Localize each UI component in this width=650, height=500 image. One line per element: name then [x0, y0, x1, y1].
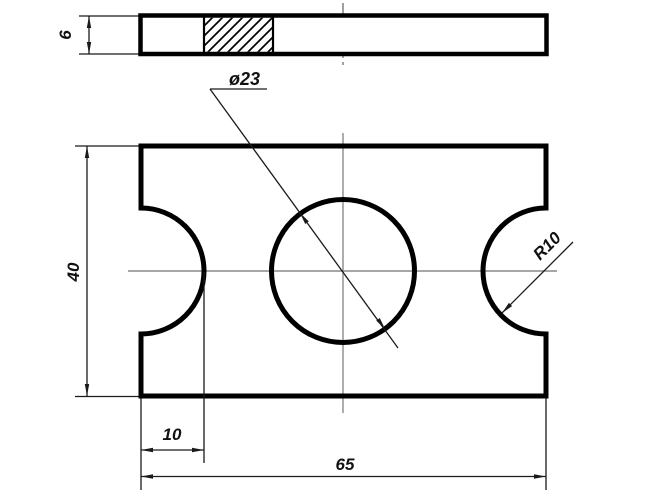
dimension-label-width: 65 [336, 455, 355, 474]
arrowhead [87, 16, 91, 28]
centerlines [128, 3, 557, 413]
dimension-label-height: 40 [64, 262, 83, 282]
arrowhead [85, 146, 89, 158]
dimension-thickness: 6 [56, 16, 140, 54]
dimension-label-notch-radius: R10 [529, 228, 565, 264]
arrowhead [87, 42, 91, 54]
dimension-height: 40 [64, 146, 139, 397]
drawing-canvas: 6 40 ø23 R10 1 [0, 0, 650, 500]
arrowhead [141, 474, 153, 478]
arrowhead [141, 448, 153, 452]
section-hatch-area [204, 18, 273, 52]
top-view-outline [141, 16, 547, 55]
dimension-label-thickness: 6 [56, 30, 75, 40]
engineering-drawing: 6 40 ø23 R10 1 [0, 0, 650, 500]
dimension-label-notch-depth: 10 [163, 425, 182, 444]
dimension-label-hole-diameter: ø23 [229, 69, 260, 89]
arrowhead [192, 448, 204, 452]
arrowhead [534, 474, 546, 478]
top-view [141, 16, 547, 55]
arrowhead [300, 213, 309, 224]
arrowhead [376, 318, 385, 329]
arrowhead [85, 384, 89, 396]
